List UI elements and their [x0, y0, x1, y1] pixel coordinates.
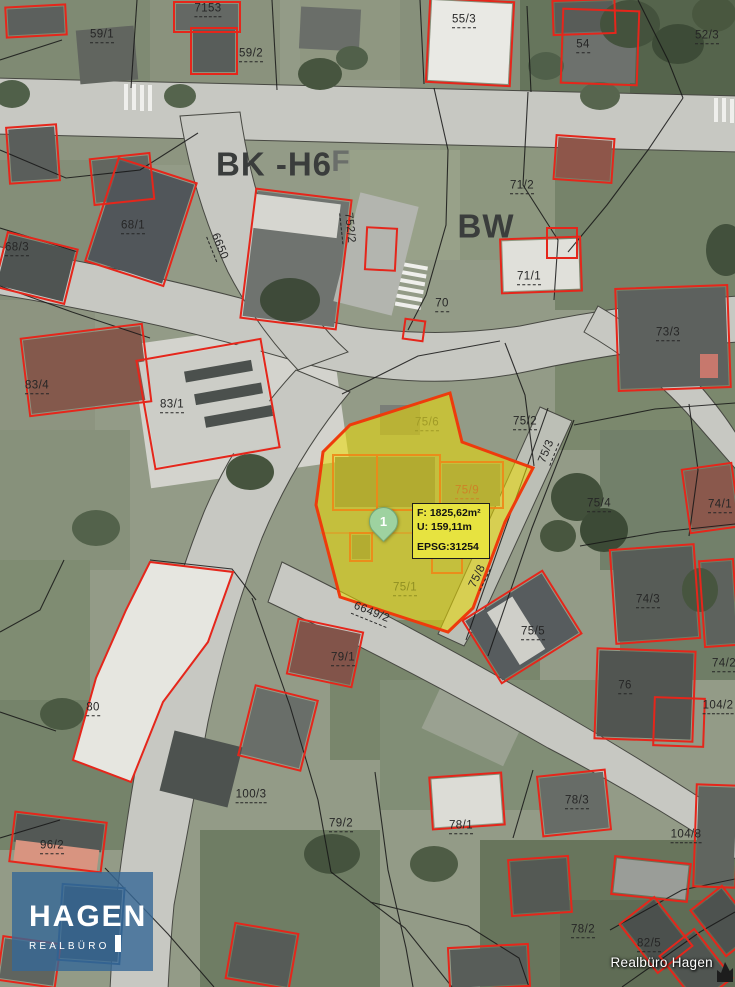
parcel-label: 75/2: [513, 416, 537, 430]
parcel-label: 78/2: [571, 924, 595, 938]
watermark-logo: HAGEN REALBÜRO: [12, 872, 153, 971]
parcel-label: 78/3: [565, 795, 589, 809]
parcel-label: 75/6: [415, 417, 439, 431]
parcel-label: 96/2: [40, 840, 64, 854]
parcel-label: 52/3: [695, 30, 719, 44]
info-box-spacer: [417, 534, 485, 541]
parcel-label: 75/4: [587, 498, 611, 512]
area-value: F: 1825,62m²: [417, 507, 485, 521]
parcel-label: 7153: [194, 3, 221, 17]
parcel-label: 74/1: [708, 499, 732, 513]
logo-bar-icon: [115, 935, 121, 952]
aerial-map-layer[interactable]: [0, 0, 735, 987]
parcel-label: 79/1: [331, 652, 355, 666]
parcel-label: 82/5: [637, 938, 661, 952]
parcel-label: 75/1: [393, 582, 417, 596]
parcel-label: 76: [618, 680, 632, 694]
map-viewport[interactable]: 715359/159/255/35452/371/268/168/3665075…: [0, 0, 735, 987]
parcel-label: 68/1: [121, 220, 145, 234]
parcel-label: 71/1: [517, 271, 541, 285]
parcel-label: 70: [435, 298, 449, 312]
parcel-label: 59/2: [239, 48, 263, 62]
zone-label: BW: [458, 210, 515, 243]
parcel-label: 68/3: [5, 242, 29, 256]
parcel-label: 83/1: [160, 399, 184, 413]
zone-label: BK -H6: [216, 148, 332, 181]
parcel-label: 79/2: [329, 818, 353, 832]
watermark-brand-name: HAGEN: [29, 902, 153, 932]
parcel-label: 75/9: [455, 485, 479, 499]
parcel-info-box: F: 1825,62m² U: 159,11m EPSG:31254: [412, 503, 490, 559]
parcel-label: 75/5: [521, 626, 545, 640]
parcel-label: 74/2: [712, 658, 735, 672]
parcel-label: 83/4: [25, 380, 49, 394]
parcel-label: 752/2: [340, 212, 357, 244]
perimeter-value: U: 159,11m: [417, 521, 485, 535]
watermark-subtitle: REALBÜRO: [29, 942, 110, 952]
watermark-subtitle-row: REALBÜRO: [29, 935, 153, 952]
parcel-label: 104/8: [671, 829, 702, 843]
epsg-value: EPSG:31254: [417, 541, 485, 555]
parcel-label: 59/1: [90, 29, 114, 43]
parcel-label: 71/2: [510, 180, 534, 194]
parcel-label: 100/3: [236, 789, 267, 803]
parcel-label: 73/3: [656, 327, 680, 341]
parcel-label: 74/3: [636, 594, 660, 608]
parcel-label: 55/3: [452, 14, 476, 28]
map-attribution: Realbüro Hagen: [610, 955, 713, 970]
parcel-label: 54: [576, 39, 590, 53]
zone-label: F: [331, 147, 350, 177]
marker-number: 1: [370, 508, 397, 535]
parcel-label: 80: [86, 702, 100, 716]
parcel-label: 104/2: [703, 700, 734, 714]
parcel-label: 78/1: [449, 820, 473, 834]
